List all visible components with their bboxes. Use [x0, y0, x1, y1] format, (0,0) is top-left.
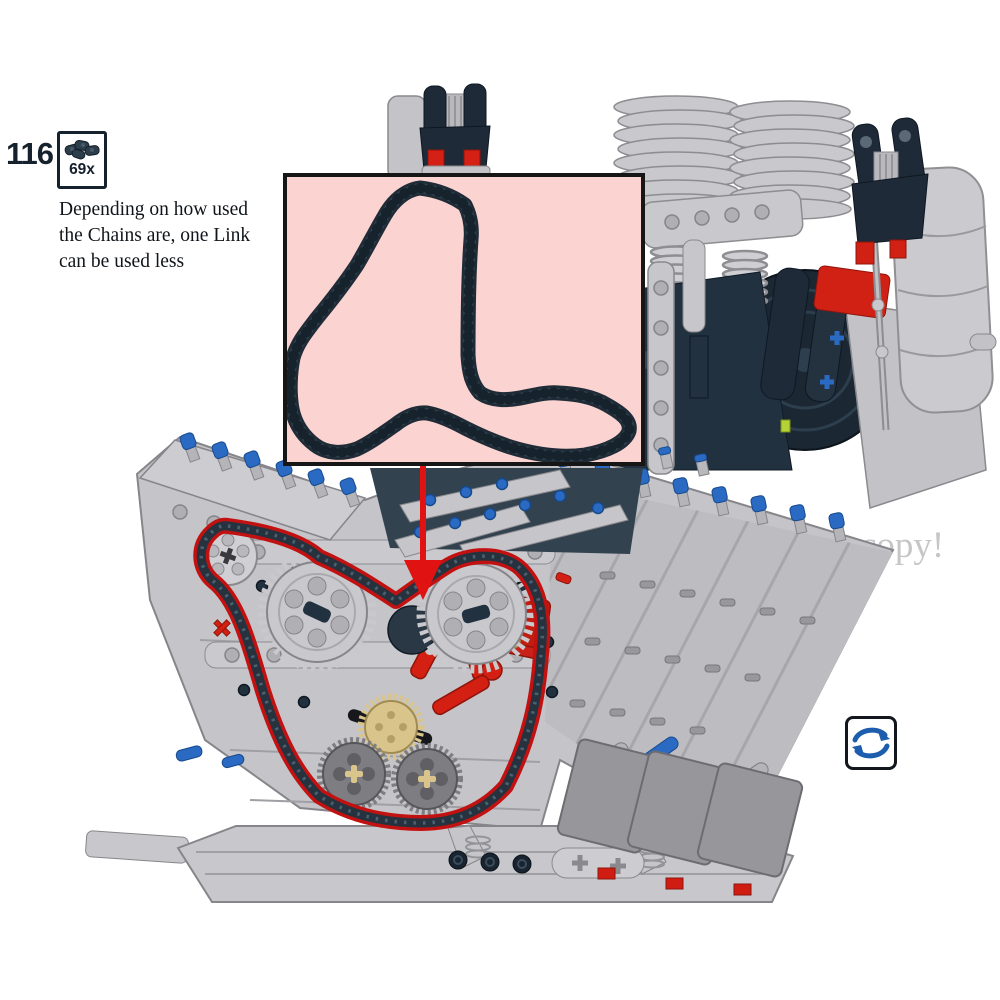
carburetor-assembly — [388, 84, 490, 180]
rotate-icon-box — [845, 716, 897, 770]
parts-count-label: 69x — [60, 161, 104, 178]
chain-links-icon — [62, 137, 102, 161]
instruction-page: copy! — [0, 0, 1000, 1000]
pointer-arrow — [398, 460, 458, 610]
step-number: 116 — [6, 136, 53, 172]
engine-illustration: copy! — [0, 0, 1000, 1000]
chain-loop-drawing — [287, 177, 641, 462]
note-text: Depending on how used the Chains are, on… — [59, 197, 299, 275]
note-line-3: can be used less — [59, 249, 299, 275]
parts-count-box: 69x — [57, 131, 107, 189]
inset-callout-box — [283, 173, 645, 466]
rotate-model-icon — [848, 719, 894, 767]
note-line-2: the Chains are, one Link — [59, 223, 299, 249]
note-line-1: Depending on how used — [59, 197, 299, 223]
